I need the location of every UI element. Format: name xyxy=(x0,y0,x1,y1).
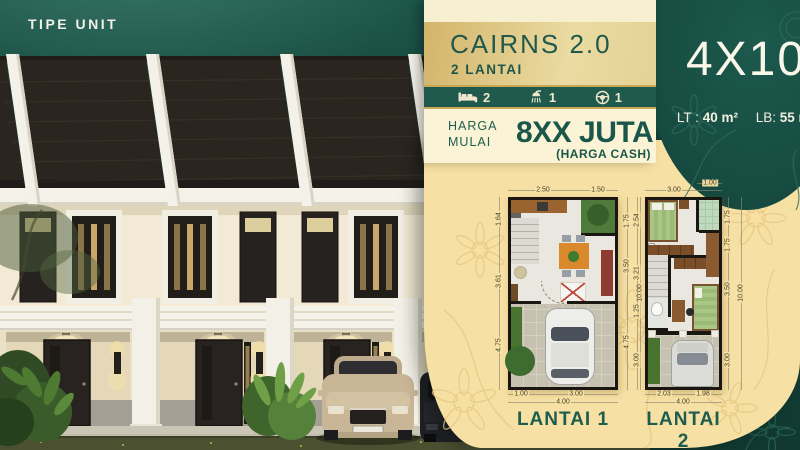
dim-label: 3.61 xyxy=(496,273,503,289)
dresser xyxy=(674,258,706,269)
floral-decor-panel xyxy=(646,0,800,210)
title-band: CAIRNS 2.0 2 LANTAI xyxy=(424,22,656,85)
price-label: HARGA MULAI xyxy=(448,118,497,151)
carport-tree xyxy=(505,346,535,376)
dim-label: 1.25 xyxy=(634,303,641,319)
brochure-page: TIPE UNIT xyxy=(0,0,800,450)
spec-value: 1 xyxy=(549,90,556,105)
desk xyxy=(706,233,719,277)
spec-carport: 1 xyxy=(595,90,622,105)
dim-label: 10.00 xyxy=(738,283,745,303)
dim-label: 4.00 xyxy=(555,399,571,406)
bed-2 xyxy=(692,284,719,331)
dim-label: 3.50 xyxy=(624,258,631,274)
floor-plan-2-label: LANTAI 2 xyxy=(645,409,722,450)
lb-value: 55 m² xyxy=(780,110,800,125)
spec-bedrooms: 2 xyxy=(458,90,490,105)
price-label-line1: HARGA xyxy=(448,118,497,134)
dim-label: 1.00 xyxy=(702,180,718,187)
dim-label: 4.75 xyxy=(496,337,503,353)
size-panel: 4X10 LT : 40 m² LB: 55 m² xyxy=(646,0,800,210)
dim-label: 3.00 xyxy=(666,187,682,194)
nightstand xyxy=(679,200,689,209)
dim-label: 2.03 xyxy=(656,391,672,398)
dim-label: 4.75 xyxy=(624,334,631,350)
door-swing xyxy=(541,281,564,304)
spec-value: 2 xyxy=(483,90,490,105)
spec-bathrooms: 1 xyxy=(529,90,556,105)
size-dimension: 4X10 xyxy=(646,36,800,84)
dim-label: 1.00 xyxy=(513,391,529,398)
toilet xyxy=(651,302,663,316)
dim-label: 1.98 xyxy=(695,391,711,398)
dim-label: 1.64 xyxy=(496,211,503,227)
product-name: CAIRNS 2.0 xyxy=(450,29,612,60)
bed xyxy=(648,200,678,242)
dim-label: 1.75 xyxy=(725,209,732,225)
lb-label: LB: xyxy=(756,110,776,125)
planter xyxy=(648,338,660,384)
info-panel: CAIRNS 2.0 2 LANTAI 2 xyxy=(424,0,656,163)
dim-label: 1.75 xyxy=(725,237,732,253)
dim-label: 3.00 xyxy=(725,352,732,368)
tipe-unit-label: TIPE UNIT xyxy=(28,16,118,32)
dim-label: 3.00 xyxy=(634,352,641,368)
pouf xyxy=(514,266,527,279)
dim-label: 2.50 xyxy=(535,187,551,194)
chair xyxy=(576,270,585,277)
chair xyxy=(562,235,571,242)
dim-label: 3.21 xyxy=(634,265,641,281)
desk-2 xyxy=(672,300,685,322)
lt-value: 40 m² xyxy=(703,110,738,125)
sofa xyxy=(601,250,613,296)
stool xyxy=(686,308,694,316)
chair xyxy=(576,235,585,242)
bathroom xyxy=(699,200,719,230)
car-topview xyxy=(671,340,714,387)
stove xyxy=(537,202,548,211)
floor-plan-1-label: LANTAI 1 xyxy=(508,409,618,431)
dim-label: 1.50 xyxy=(590,187,606,194)
floor-plan-1-drawing xyxy=(508,197,618,390)
price-label-line2: MULAI xyxy=(448,134,497,150)
price-section: HARGA MULAI 8XX JUTA (HARGA CASH) xyxy=(424,109,656,163)
bed-icon xyxy=(458,90,478,104)
dim-label: 3.50 xyxy=(725,281,732,297)
steering-wheel-icon xyxy=(595,90,610,105)
dim-label: 3.00 xyxy=(568,391,584,398)
size-specs: LT : 40 m² LB: 55 m² xyxy=(646,110,800,125)
dim-label: 2.54 xyxy=(634,212,641,228)
dim-label: 4.00 xyxy=(675,399,691,406)
table-plant xyxy=(568,251,579,262)
stairs xyxy=(511,218,539,264)
garden-tree xyxy=(587,204,609,226)
lt-label: LT : xyxy=(677,110,699,125)
spec-value: 1 xyxy=(615,90,622,105)
spec-bar: 2 1 xyxy=(424,85,656,109)
dim-label: 1.75 xyxy=(624,213,631,229)
price-note: (HARGA CASH) xyxy=(556,147,651,161)
floor-plan-2-drawing xyxy=(645,197,722,390)
car-topview xyxy=(545,308,595,385)
price-amount: 8XX JUTA xyxy=(516,116,653,150)
chair xyxy=(562,270,571,277)
shower-icon xyxy=(529,90,544,104)
product-floors: 2 LANTAI xyxy=(451,62,523,77)
